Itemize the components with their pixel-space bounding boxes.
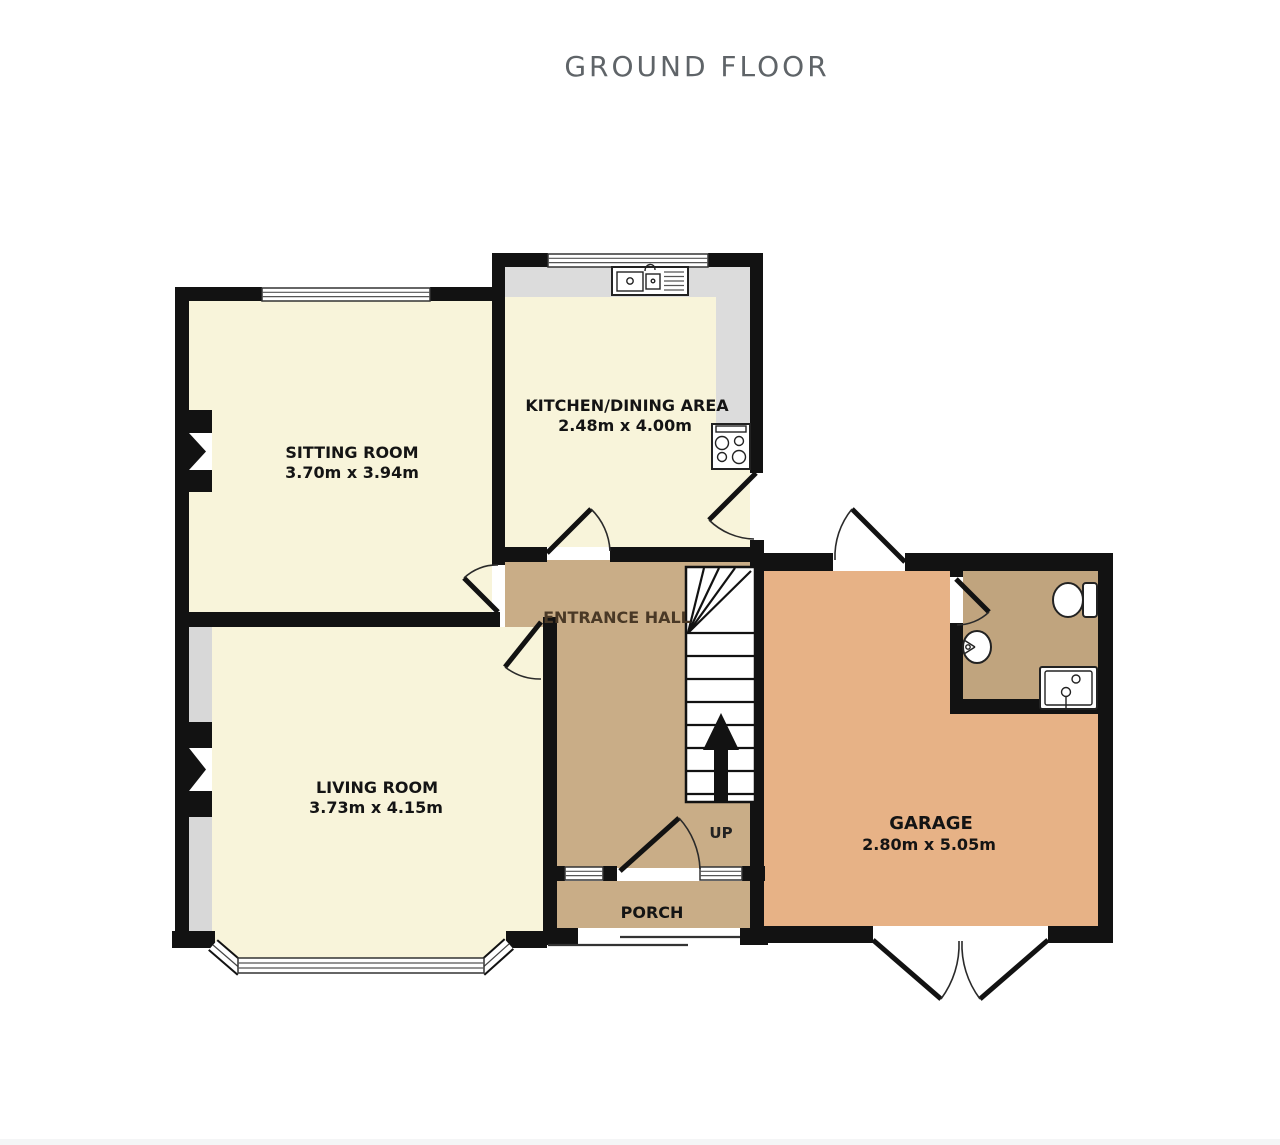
- staircase: [686, 567, 755, 802]
- kitchen-hob: [712, 424, 750, 469]
- porch-window-left: [565, 867, 603, 880]
- entrance-hall-label: ENTRANCE HALL: [543, 608, 691, 627]
- garage-label: GARAGE: [889, 813, 973, 834]
- sitting-room-window: [262, 288, 430, 301]
- floor-plan-svg: GROUND FLOOR: [0, 0, 1280, 1145]
- kitchen-dims: 2.48m x 4.00m: [558, 416, 692, 435]
- toilet-icon: [1053, 583, 1097, 617]
- kitchen-sink: [612, 264, 688, 295]
- sitting-room-label: SITTING ROOM: [285, 443, 418, 462]
- living-room-label: LIVING ROOM: [316, 778, 438, 797]
- wc-sink-icon: [1040, 667, 1097, 709]
- stairs-up-label: UP: [709, 824, 732, 842]
- garage-side-door: [835, 509, 905, 562]
- bottom-edge-strip: [0, 1139, 1280, 1145]
- garage-dims: 2.80m x 5.05m: [862, 835, 996, 854]
- corner-basin-icon: [963, 631, 991, 663]
- living-room-dims: 3.73m x 4.15m: [309, 798, 443, 817]
- sitting-room-dims: 3.70m x 3.94m: [285, 463, 419, 482]
- living-room-floor-bay-neck: [215, 931, 506, 950]
- garage-double-doors: [873, 940, 1048, 999]
- porch-label: PORCH: [621, 903, 684, 922]
- kitchen-window: [548, 254, 708, 267]
- page-title: GROUND FLOOR: [564, 50, 829, 83]
- porch-window-right: [700, 867, 742, 880]
- floor-plan-page: GROUND FLOOR: [0, 0, 1280, 1145]
- kitchen-label: KITCHEN/DINING AREA: [525, 396, 729, 415]
